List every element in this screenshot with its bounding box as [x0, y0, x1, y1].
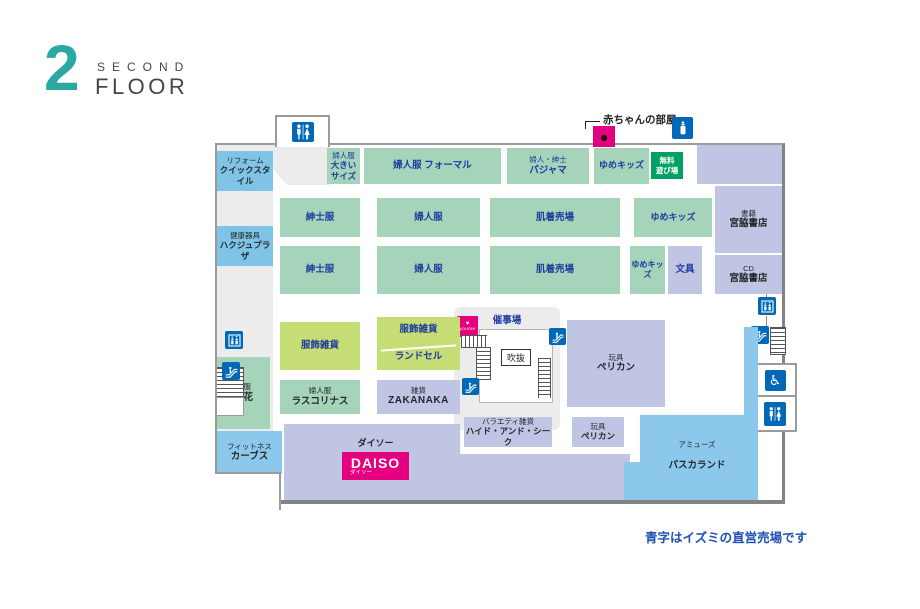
- daiso-label: ダイソー: [342, 436, 409, 449]
- restroom-box-right: [753, 395, 797, 432]
- section-stationery: 文具: [668, 246, 702, 294]
- section-accessories-1: 服飾雑貨: [280, 322, 360, 370]
- stairs-hatch: [770, 327, 786, 355]
- floor-map: リフォーム クイックスタイル 健康器具 ハクジュプラザ 呉服 鈴花 フィットネス…: [215, 143, 785, 504]
- restroom-icon: [292, 122, 314, 142]
- section-hakuju-plaza: 健康器具 ハクジュプラザ: [217, 226, 273, 266]
- section-toys-pelican-1: 玩具 ペリカン: [567, 320, 665, 407]
- escalator-icon: [222, 362, 240, 380]
- atrium-label: 吹抜: [501, 349, 531, 366]
- elevator-icon: [758, 297, 776, 315]
- backroom-area: [273, 145, 330, 185]
- baby-bottle-icon: [672, 117, 693, 139]
- map-cutout: [215, 472, 281, 510]
- section-ladies-large-size: 婦人服 大きい サイズ: [327, 148, 360, 184]
- stairs-hatch: [476, 347, 491, 380]
- escalator-icon: [549, 328, 566, 345]
- baby-room-marker: [593, 126, 615, 147]
- section-toys-pelican-2: 玩具 ペリカン: [572, 417, 624, 447]
- youme-logo-badge: ♥youme: [457, 316, 478, 337]
- section-zakanaka: 雑貨 ZAKANAKA: [377, 380, 460, 414]
- baby-room-label: 赤ちゃんの部屋: [603, 112, 677, 127]
- section-books-upper: [697, 145, 782, 184]
- legend-note: 青字はイズミの直営売場です: [645, 527, 807, 546]
- floor-map-page: 2 SECOND FLOOR リフォーム クイックスタイル 健康器具 ハクジュプ…: [0, 0, 920, 609]
- section-books-miyawaki: 書籍 宮脇書店: [715, 186, 782, 253]
- accessible-box: ♿: [753, 363, 797, 397]
- daiso-logo: DAISO ダイソー: [342, 452, 409, 480]
- floor-word-floor: FLOOR: [95, 74, 188, 100]
- section-yume-kids-1: ゆめキッズ: [594, 148, 649, 184]
- top-restroom-box: [275, 115, 330, 147]
- restroom-icon: [764, 402, 786, 426]
- section-hide-and-seek: バラエティ雑貨 ハイド・アンド・シーク: [464, 417, 552, 447]
- pascal-land-label: アミューズ パスカランド: [642, 433, 752, 475]
- section-reform-quickstyle: リフォーム クイックスタイル: [217, 151, 273, 191]
- section-yume-kids-2: ゆめキッズ: [634, 198, 712, 237]
- section-pajama: 婦人・紳士 パジャマ: [507, 148, 589, 184]
- section-underwear-1: 肌着売場: [490, 198, 620, 237]
- elevator-icon: [225, 331, 243, 349]
- section-ladies-formal: 婦人服 フォーマル: [364, 148, 501, 184]
- stairs-hatch: [538, 358, 551, 398]
- section-ladies-2: 婦人服: [377, 246, 480, 294]
- section-yume-kids-3: ゆめキッズ: [630, 246, 665, 294]
- divider: [381, 344, 456, 351]
- section-underwear-2: 肌着売場: [490, 246, 620, 294]
- wheelchair-icon: ♿: [765, 370, 786, 391]
- free-play-area-badge: 無料 遊び場: [651, 152, 683, 179]
- section-fitness-curves: フィットネス カーブス: [217, 431, 282, 474]
- floor-number: 2: [44, 36, 80, 100]
- floor-word-second: SECOND: [97, 60, 190, 74]
- escalator-icon: [462, 378, 479, 395]
- connector-line: [766, 316, 767, 326]
- section-rascolinas: 婦人服 ラスコリナス: [280, 380, 360, 414]
- section-mens-2: 紳士服: [280, 246, 360, 294]
- section-ladies-1: 婦人服: [377, 198, 480, 237]
- section-cd-miyawaki: CD 宮脇書店: [715, 255, 782, 294]
- section-accessories-randoseru: 服飾雑貨 ランドセル: [377, 317, 460, 370]
- stair-landing: [217, 397, 244, 416]
- baby-room-dot: [601, 135, 607, 141]
- section-mens-1: 紳士服: [280, 198, 360, 237]
